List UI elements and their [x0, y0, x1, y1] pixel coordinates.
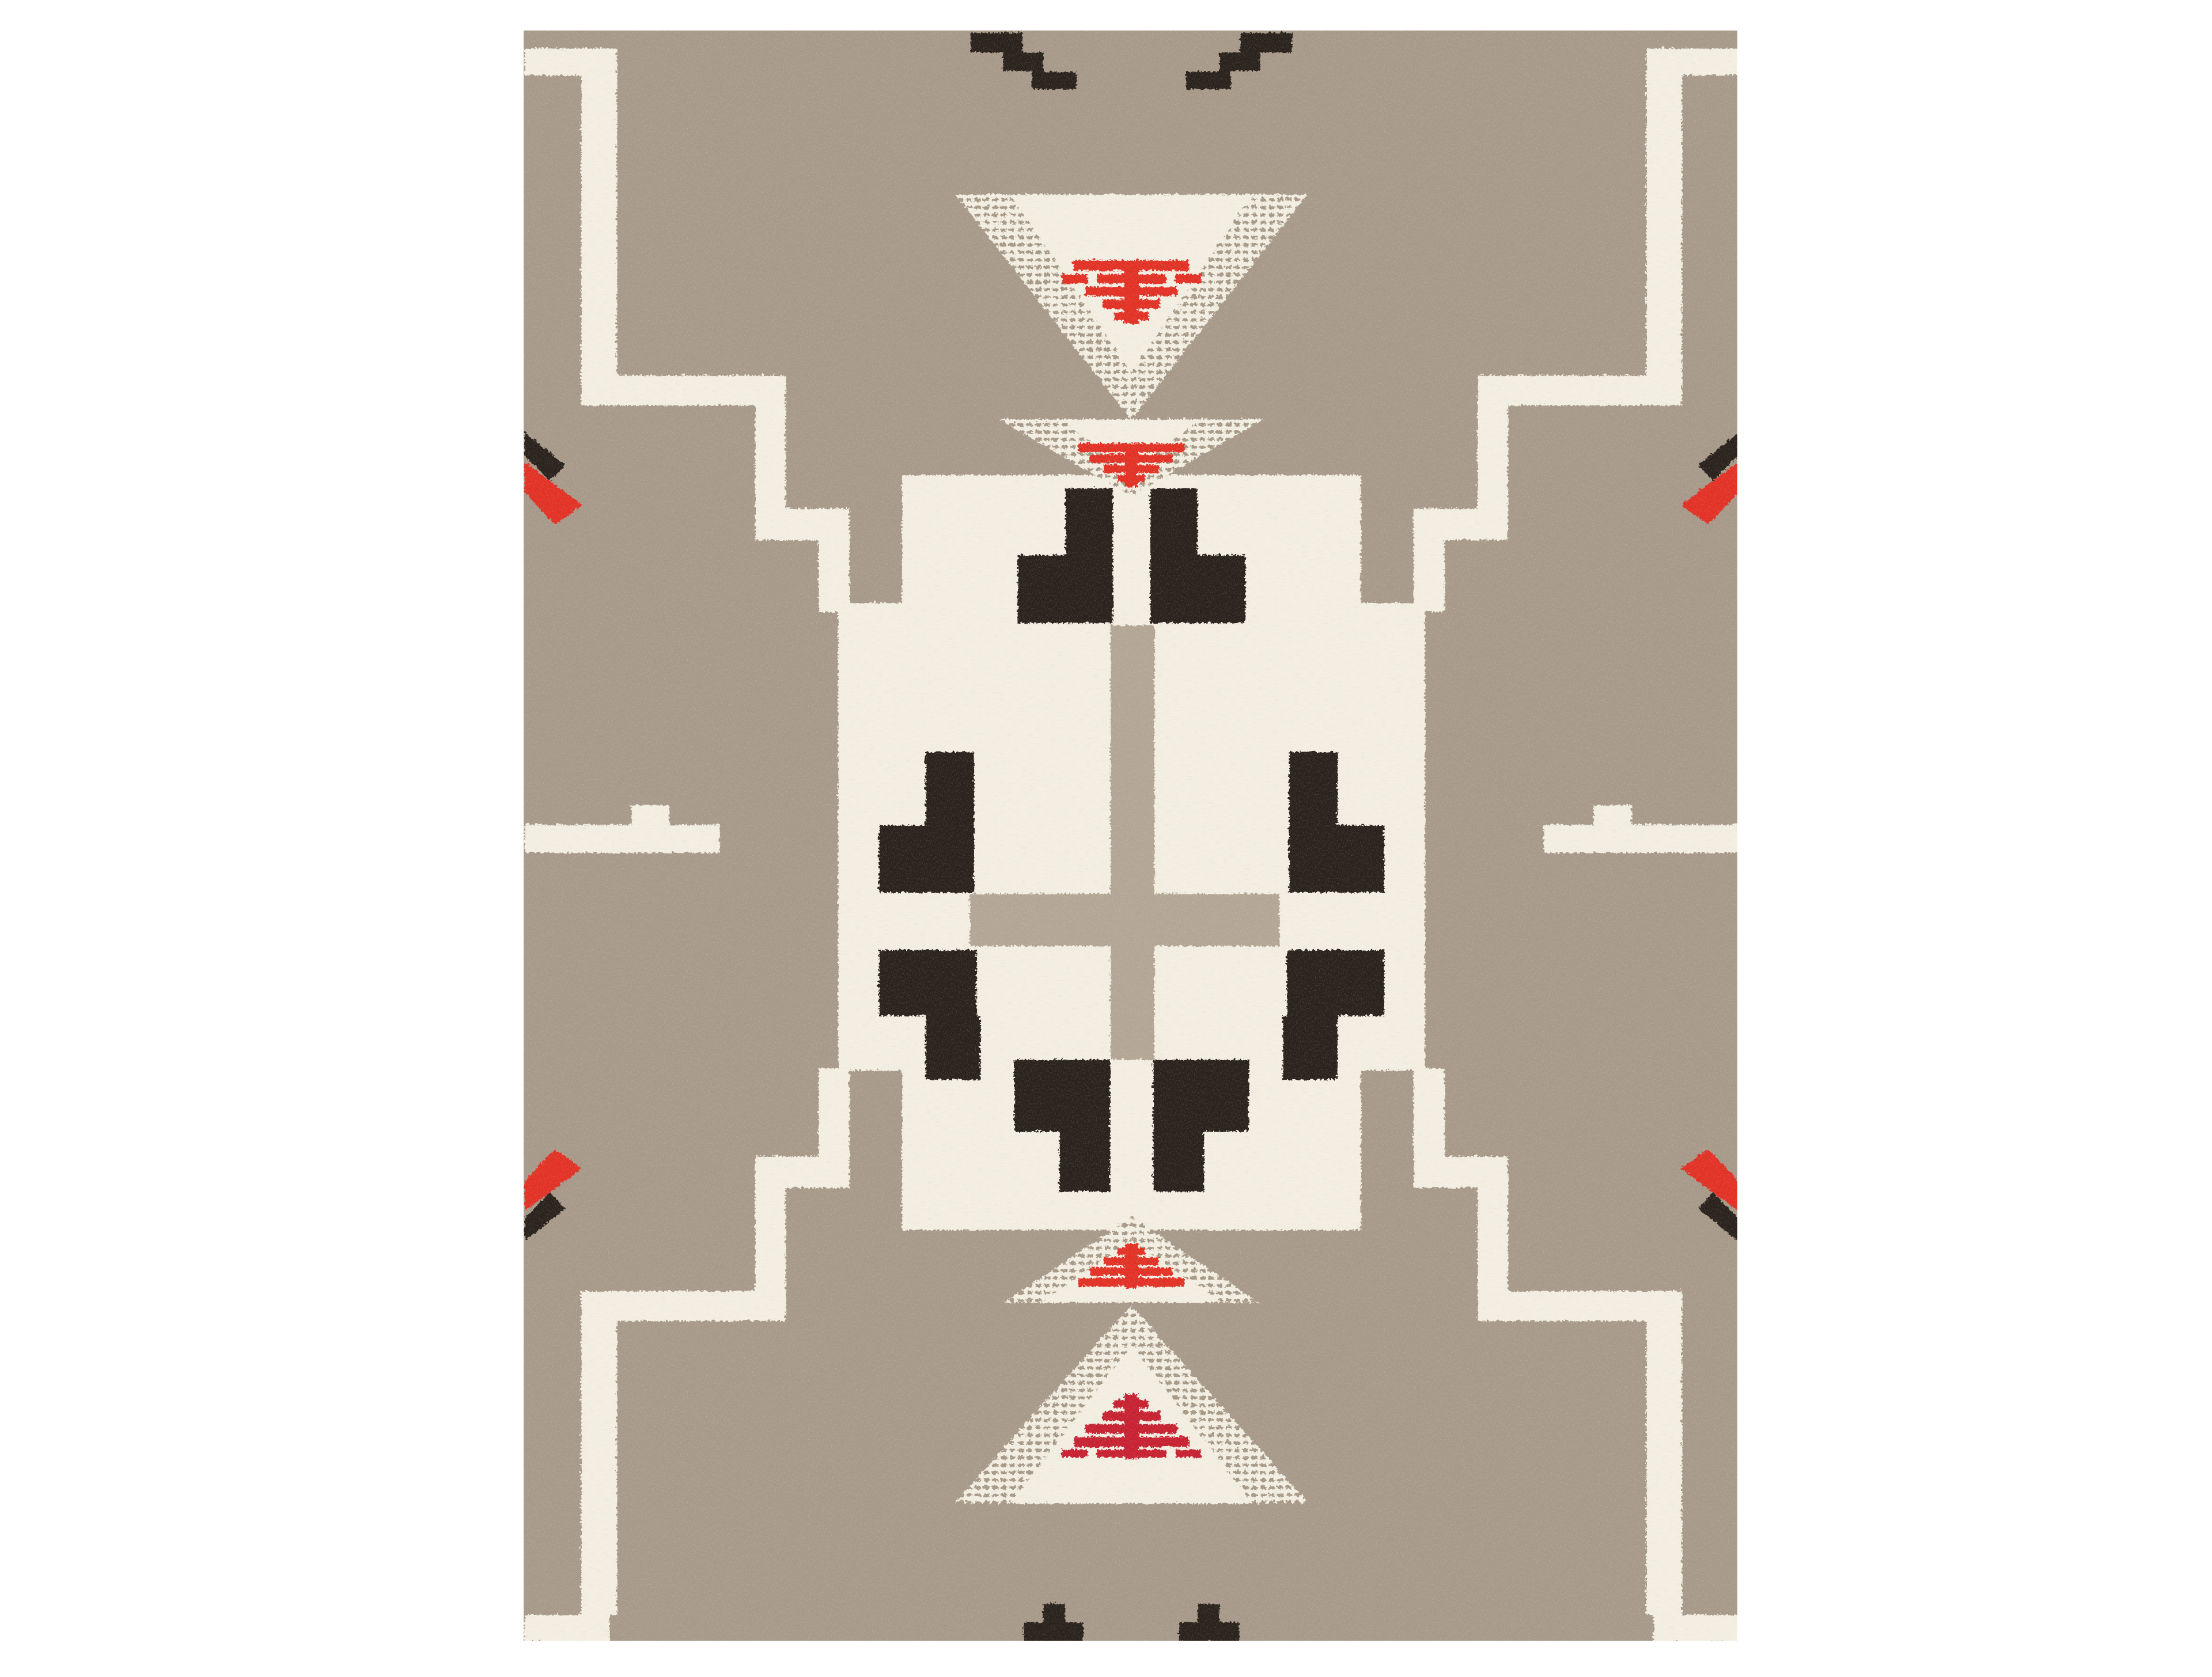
photo-page — [23, 9, 2212, 1668]
wool-grain-dark — [524, 31, 1737, 1641]
navajo-rug-photo — [524, 31, 1737, 1641]
rug-artwork — [524, 31, 1737, 1641]
